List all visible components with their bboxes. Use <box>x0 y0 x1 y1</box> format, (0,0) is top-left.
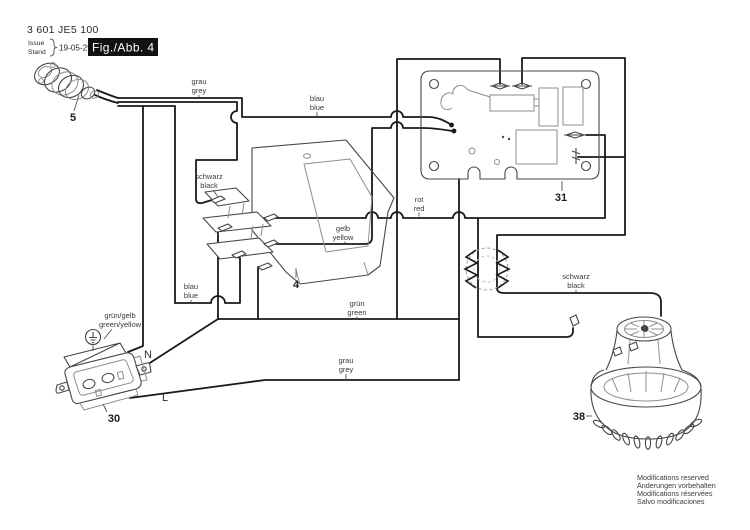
wire-labels: grau grey blau blue schwarz black gelb y… <box>99 77 590 404</box>
switch-slat-2 <box>203 212 271 232</box>
issue-date: 19-05-29 <box>59 44 92 53</box>
pcb-hole-bl <box>430 162 439 171</box>
label-blau-lower-2: blue <box>184 291 198 300</box>
part-number: 3 601 JE5 100 <box>27 24 99 36</box>
plug-pin-left <box>39 79 44 84</box>
leader-30 <box>103 404 107 412</box>
pcb-pad-1 <box>469 148 475 154</box>
stand-label: Stand <box>28 49 46 56</box>
switch-terminal-red <box>264 214 278 221</box>
footer-note: Modifications reserved Änderungen vorbeh… <box>637 473 716 506</box>
label-blau-top-2: blue <box>310 103 324 112</box>
callout-38: 38 <box>573 411 585 423</box>
pcb-terminal-right-spade <box>564 132 586 138</box>
rocker-switch-4: 4 <box>203 140 394 291</box>
choke-ring <box>465 248 509 290</box>
switch-terminal-green <box>258 263 272 270</box>
label-grau-top-2: grey <box>192 86 207 95</box>
socket-front-face <box>65 353 141 404</box>
label-grau-top-1: grau <box>191 77 206 86</box>
label-grau-lower-2: grey <box>339 365 354 374</box>
switch-lip <box>296 262 368 284</box>
solder-dot-blue <box>449 123 454 128</box>
power-socket-30: 30 <box>56 330 151 426</box>
label-blau-top-1: blau <box>310 94 324 103</box>
wire-yellow <box>264 122 452 244</box>
pcb-trace <box>441 85 490 109</box>
label-schwarz-switch-2: black <box>200 181 218 190</box>
wire-pcb-top-left <box>397 59 500 319</box>
pcb-relay <box>516 130 557 164</box>
label-schwarz-motor-1: schwarz <box>562 272 590 281</box>
wire-blue-left-drop <box>118 106 175 303</box>
wire-red <box>264 135 605 218</box>
label-schwarz-motor-2: black <box>567 281 585 290</box>
callout-5: 5 <box>70 112 76 124</box>
motor-38: 38 <box>570 315 703 449</box>
pcb-dot-1 <box>502 136 504 138</box>
socket-ear-left <box>56 382 69 393</box>
switch-hole <box>304 154 311 158</box>
pcb-hole-br <box>582 162 591 171</box>
wiring-diagram: 3 601 JE5 100 Issue Stand 19-05-29 Fig./… <box>0 0 750 530</box>
label-gelb-1: gelb <box>336 224 350 233</box>
label-gelb-2: yellow <box>333 233 354 242</box>
choke-outer-ring <box>466 248 508 290</box>
pcb-pad-2 <box>495 160 500 165</box>
wire-neutral-diagonal <box>142 319 218 368</box>
pcb-component-3 <box>563 87 583 125</box>
issue-label: Issue <box>28 40 44 47</box>
solder-dot-yellow <box>452 129 457 134</box>
label-blau-lower-1: blau <box>184 282 198 291</box>
switch-terminal-yellow <box>264 240 278 247</box>
motor-spade-left <box>570 315 579 326</box>
pcb-component-2 <box>539 88 558 126</box>
leader-5 <box>74 95 79 111</box>
pcb-31: 31 <box>421 71 599 204</box>
label-gruen-1: grün <box>349 299 364 308</box>
motor-slot-band <box>592 418 702 449</box>
motor-hub <box>641 325 649 332</box>
figure-label: Fig./Abb. 4 <box>92 41 154 55</box>
wires <box>95 58 661 398</box>
plug-5: 5 <box>31 59 100 124</box>
motor-terminals <box>613 342 638 356</box>
wiring-diagram-page: 3 601 JE5 100 Issue Stand 19-05-29 Fig./… <box>0 0 750 530</box>
label-rot-2: red <box>414 204 425 213</box>
pcb-component-1 <box>490 95 534 111</box>
label-gruengelb-1: grün/gelb <box>104 311 135 320</box>
motor-struts <box>612 371 680 392</box>
title-block: 3 601 JE5 100 Issue Stand 19-05-29 Fig./… <box>27 24 158 56</box>
pcb-component-nub <box>534 99 539 106</box>
label-gruen-2: green <box>347 308 366 317</box>
earth-glyph <box>89 332 97 343</box>
bracket-glyph <box>50 39 57 56</box>
pcb-terminal-right-screw <box>572 148 580 164</box>
callout-30: 30 <box>108 413 120 425</box>
leader-gruengelb <box>104 329 112 339</box>
callout-4: 4 <box>293 279 300 291</box>
callout-31: 31 <box>555 192 567 204</box>
wire-black-to-switch <box>118 102 237 203</box>
footer-line-4: Salvo modificaciones <box>637 497 705 506</box>
pcb-hole-tl <box>430 80 439 89</box>
label-grau-lower-1: grau <box>338 356 353 365</box>
pcb-dot-2 <box>508 138 510 140</box>
plug-rib-1 <box>40 63 76 96</box>
label-neutral: N <box>144 349 152 361</box>
label-gruengelb-2: green/yellow <box>99 320 142 329</box>
wire-grey-lower <box>130 380 459 398</box>
switch-slat-1 <box>205 188 249 206</box>
label-rot-1: rot <box>415 195 425 204</box>
label-live: L <box>162 392 168 404</box>
label-schwarz-switch-1: schwarz <box>195 172 223 181</box>
